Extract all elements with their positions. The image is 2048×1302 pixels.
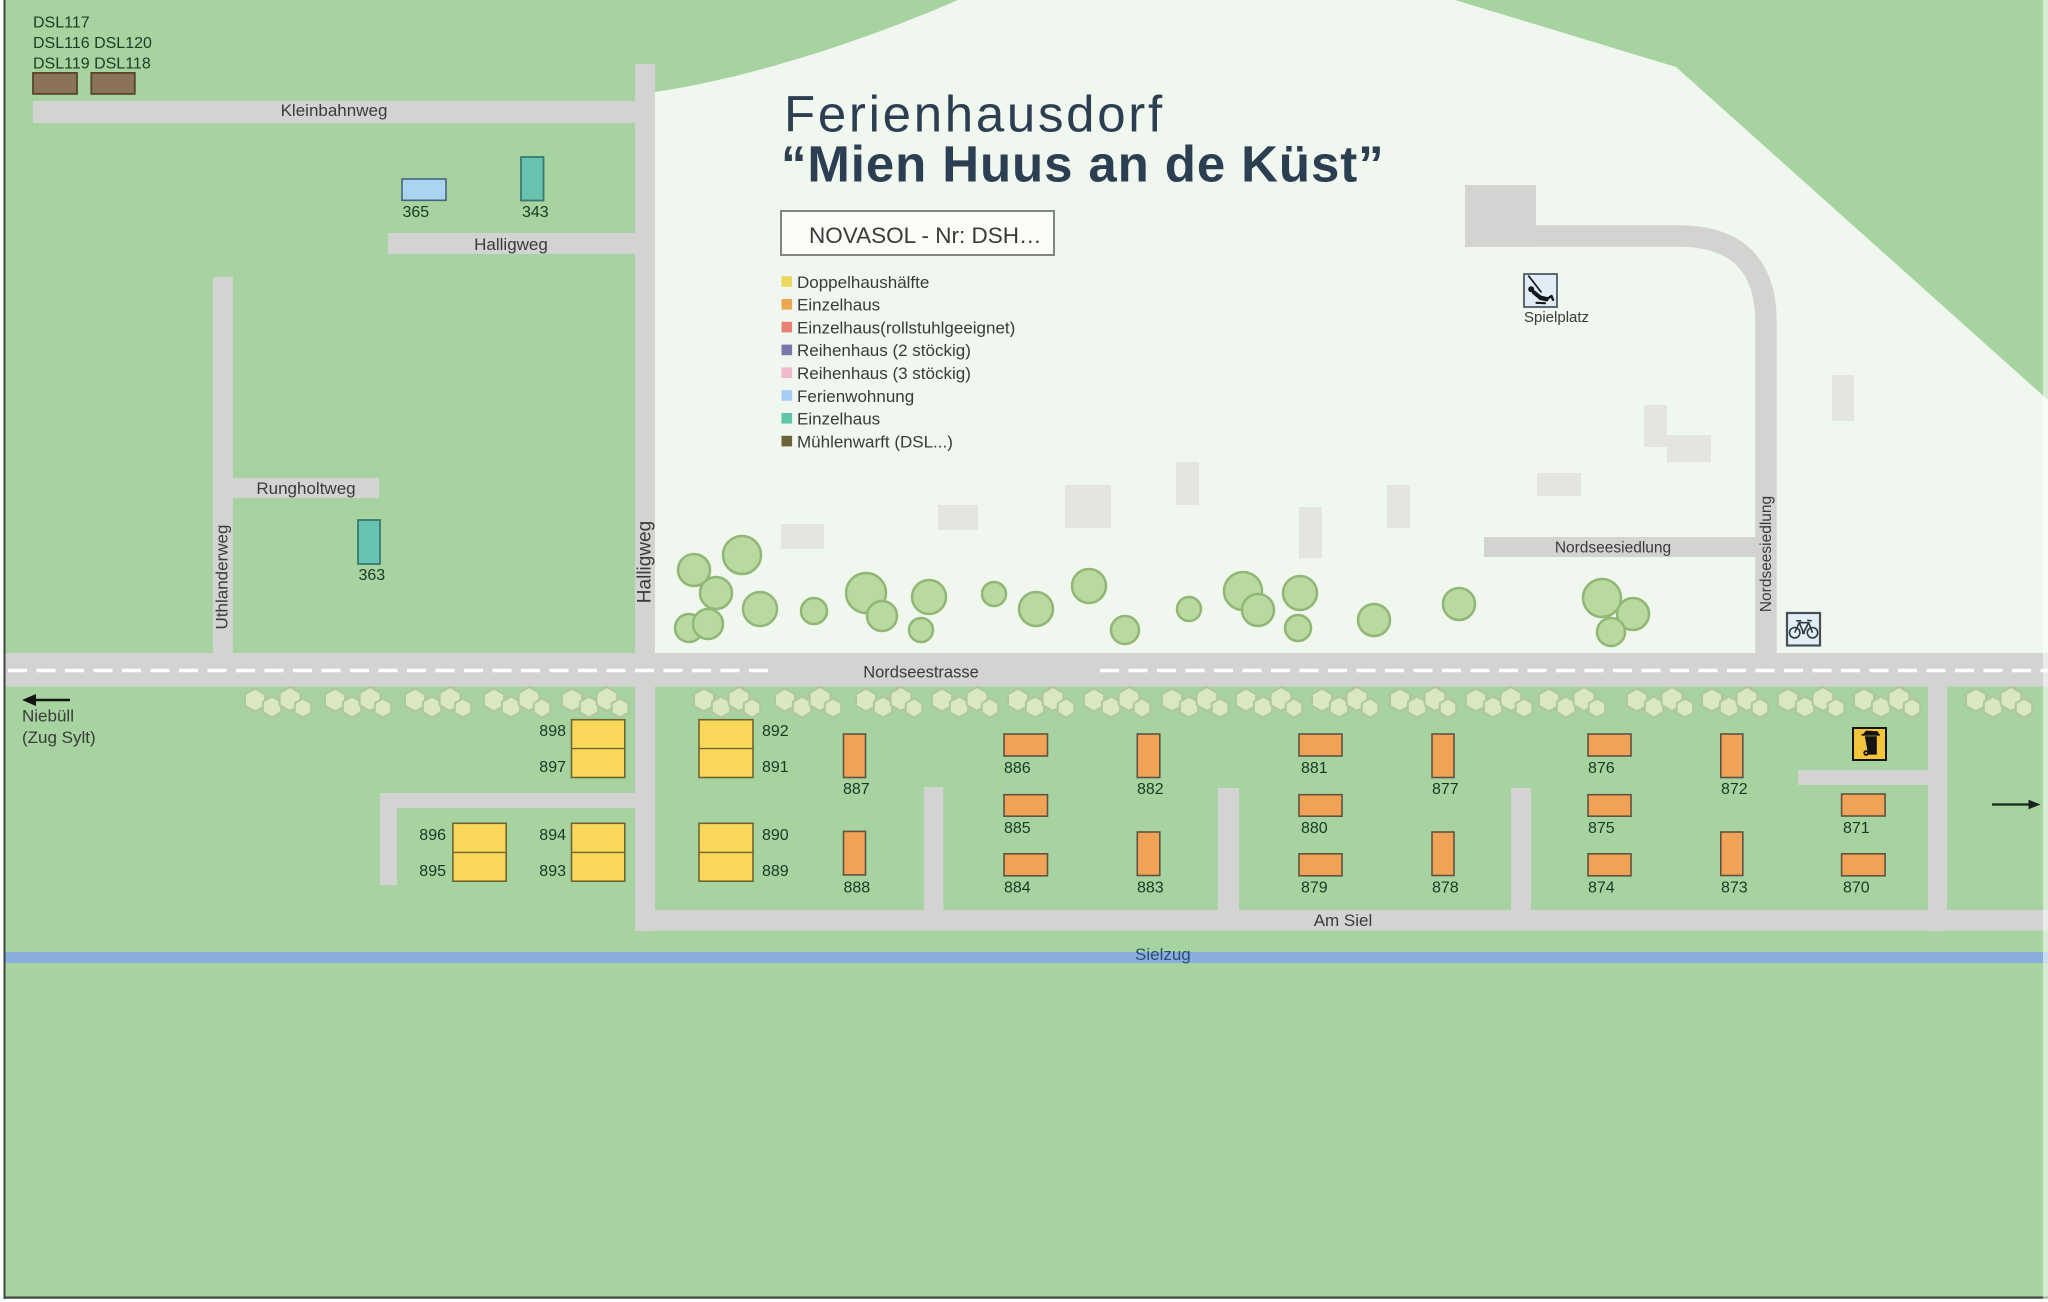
svg-text:870: 870	[1843, 880, 1870, 897]
svg-text:896: 896	[419, 827, 446, 844]
svg-text:886: 886	[1004, 760, 1031, 777]
svg-text:875: 875	[1588, 820, 1615, 837]
svg-text:872: 872	[1721, 781, 1748, 798]
svg-text:874: 874	[1588, 880, 1615, 897]
svg-text:Nordseestrasse: Nordseestrasse	[863, 664, 979, 682]
svg-text:(Zug Sylt): (Zug Sylt)	[22, 728, 96, 747]
svg-text:882: 882	[1137, 781, 1164, 798]
svg-text:Nordseesiedlung: Nordseesiedlung	[1555, 540, 1671, 557]
svg-text:888: 888	[844, 880, 871, 897]
svg-text:Reihenhaus (3 stöckig): Reihenhaus (3 stöckig)	[797, 364, 971, 383]
svg-text:885: 885	[1004, 820, 1031, 837]
svg-text:NOVASOL - Nr: DSH…: NOVASOL - Nr: DSH…	[809, 223, 1042, 248]
svg-text:895: 895	[419, 863, 446, 880]
svg-text:881: 881	[1301, 760, 1328, 777]
svg-text:Spielplatz: Spielplatz	[1524, 309, 1589, 326]
svg-text:Einzelhaus(rollstuhlgeeignet): Einzelhaus(rollstuhlgeeignet)	[797, 318, 1015, 337]
svg-text:Reihenhaus (2 stöckig): Reihenhaus (2 stöckig)	[797, 341, 971, 360]
svg-text:DSL119 DSL118: DSL119 DSL118	[33, 55, 151, 72]
svg-text:873: 873	[1721, 880, 1748, 897]
svg-text:871: 871	[1843, 820, 1870, 837]
svg-text:880: 880	[1301, 820, 1328, 837]
svg-text:897: 897	[539, 759, 566, 776]
svg-text:Ferienhausdorf: Ferienhausdorf	[784, 86, 1165, 143]
svg-text:Einzelhaus: Einzelhaus	[797, 410, 880, 429]
svg-text:892: 892	[762, 723, 789, 740]
svg-text:884: 884	[1004, 880, 1031, 897]
svg-text:363: 363	[359, 567, 386, 584]
svg-text:“Mien Huus an de Küst”: “Mien Huus an de Küst”	[781, 136, 1385, 193]
svg-text:893: 893	[539, 863, 566, 880]
svg-text:Nordseesiedlung: Nordseesiedlung	[1758, 496, 1775, 612]
svg-text:Am Siel: Am Siel	[1314, 911, 1373, 930]
svg-text:887: 887	[843, 781, 870, 798]
svg-text:Mühlenwarft (DSL...): Mühlenwarft (DSL...)	[797, 432, 953, 451]
svg-text:365: 365	[403, 204, 430, 221]
svg-text:898: 898	[539, 723, 566, 740]
svg-text:Halligweg: Halligweg	[635, 521, 656, 603]
svg-text:Uthlanderweg: Uthlanderweg	[213, 525, 232, 630]
svg-text:Halligweg: Halligweg	[474, 235, 548, 254]
svg-text:Sielzug: Sielzug	[1135, 945, 1191, 964]
svg-text:890: 890	[762, 827, 789, 844]
svg-text:Kleinbahnweg: Kleinbahnweg	[281, 101, 388, 120]
svg-text:DSL116 DSL120: DSL116 DSL120	[33, 35, 152, 52]
svg-text:Rungholtweg: Rungholtweg	[256, 479, 355, 498]
svg-text:Ferienwohnung: Ferienwohnung	[797, 387, 914, 406]
svg-text:343: 343	[522, 204, 549, 221]
svg-text:876: 876	[1588, 760, 1615, 777]
svg-text:891: 891	[762, 759, 789, 776]
svg-text:883: 883	[1137, 880, 1164, 897]
svg-text:Doppelhaushälfte: Doppelhaushälfte	[797, 273, 929, 292]
svg-text:878: 878	[1432, 880, 1459, 897]
svg-text:894: 894	[539, 827, 566, 844]
svg-text:877: 877	[1432, 781, 1459, 798]
svg-text:DSL117: DSL117	[33, 15, 90, 32]
svg-text:Einzelhaus: Einzelhaus	[797, 296, 880, 315]
svg-text:879: 879	[1301, 880, 1328, 897]
svg-text:Niebüll: Niebüll	[22, 707, 74, 726]
svg-text:889: 889	[762, 863, 789, 880]
